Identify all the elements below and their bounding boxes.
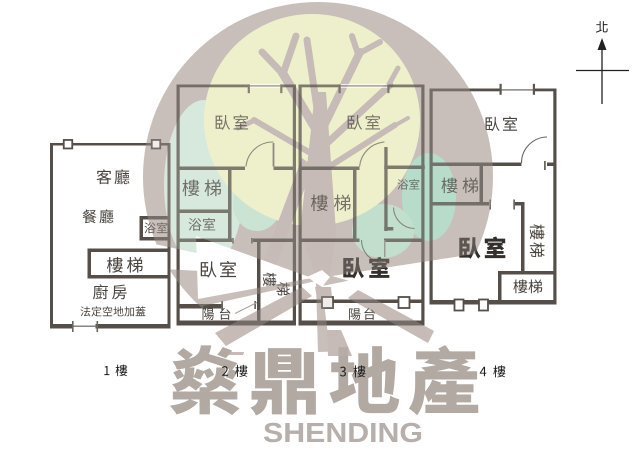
- svg-text:SHENDING: SHENDING: [263, 417, 423, 445]
